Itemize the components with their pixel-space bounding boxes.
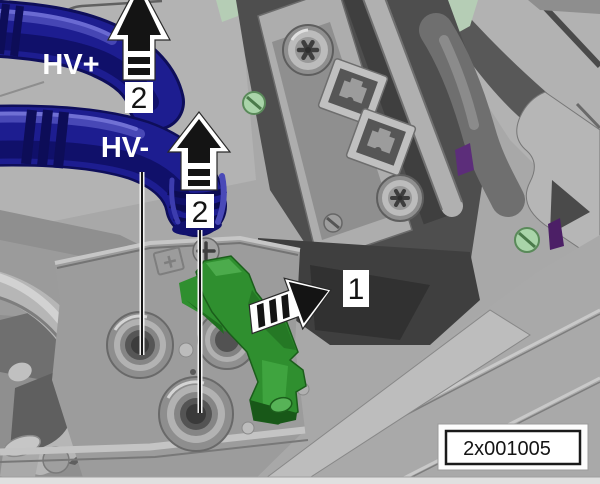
callout-1: 1: [343, 270, 369, 307]
green-screw-right: [515, 228, 539, 252]
callout-2-lower: 2: [186, 194, 214, 229]
part-code-text: 2x001005: [463, 438, 551, 460]
callout-2-upper-label: 2: [131, 82, 148, 115]
part-code-box: 2x001005: [438, 424, 588, 470]
green-screw-left: [243, 92, 265, 114]
hv-socket-b: [159, 377, 233, 451]
hv-minus-label: HV-: [101, 132, 149, 164]
small-screw: [324, 214, 342, 232]
technical-illustration: 2 2 1 HV+ HV- 2x001005: [0, 0, 600, 484]
hv-plus-label: HV+: [42, 49, 99, 81]
torx-screw-upper: [283, 25, 333, 75]
bottom-edge-strip: [0, 477, 600, 484]
torx-screw-lower: [377, 175, 423, 221]
callout-1-label: 1: [348, 273, 365, 306]
manual-figure: 2 2 1 HV+ HV- 2x001005: [0, 0, 600, 484]
callout-2-lower-label: 2: [192, 196, 209, 229]
callout-2-upper: 2: [125, 82, 153, 115]
